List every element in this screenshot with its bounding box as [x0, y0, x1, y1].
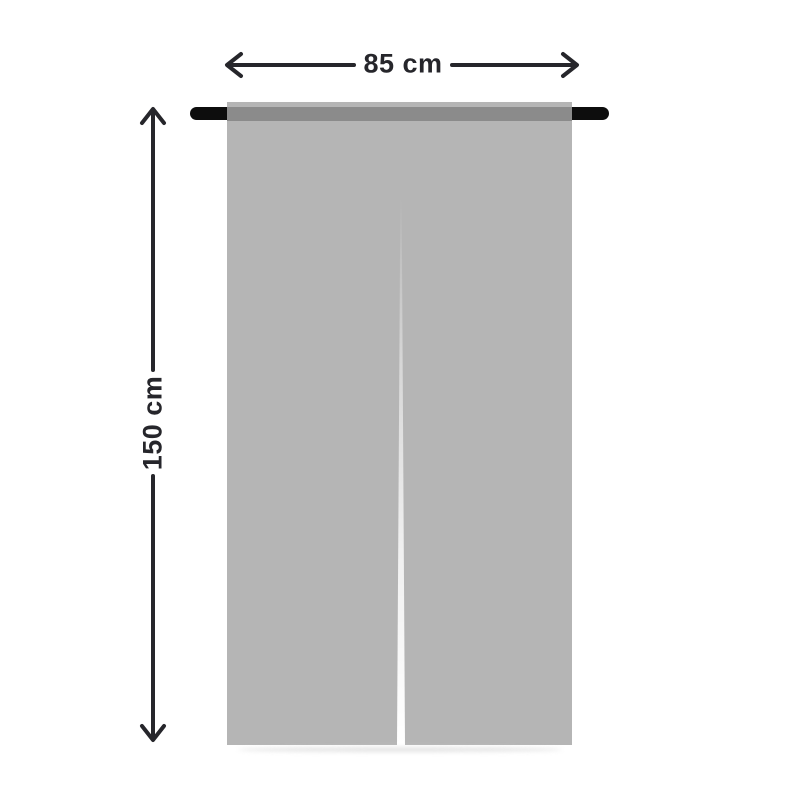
rod-through-fabric-band [227, 107, 572, 121]
arrow-right-icon [563, 54, 577, 76]
curtain-center-slit [397, 197, 405, 745]
noren-curtain [227, 102, 572, 745]
arrow-up-icon [142, 109, 164, 123]
product-dimension-diagram: 85 cm 150 cm [0, 0, 800, 800]
arrow-left-icon [227, 54, 241, 76]
width-dimension-label: 85 cm [363, 49, 442, 80]
curtain-shadow [238, 747, 562, 752]
arrow-down-icon [142, 726, 164, 740]
height-dimension-label: 150 cm [138, 376, 169, 471]
